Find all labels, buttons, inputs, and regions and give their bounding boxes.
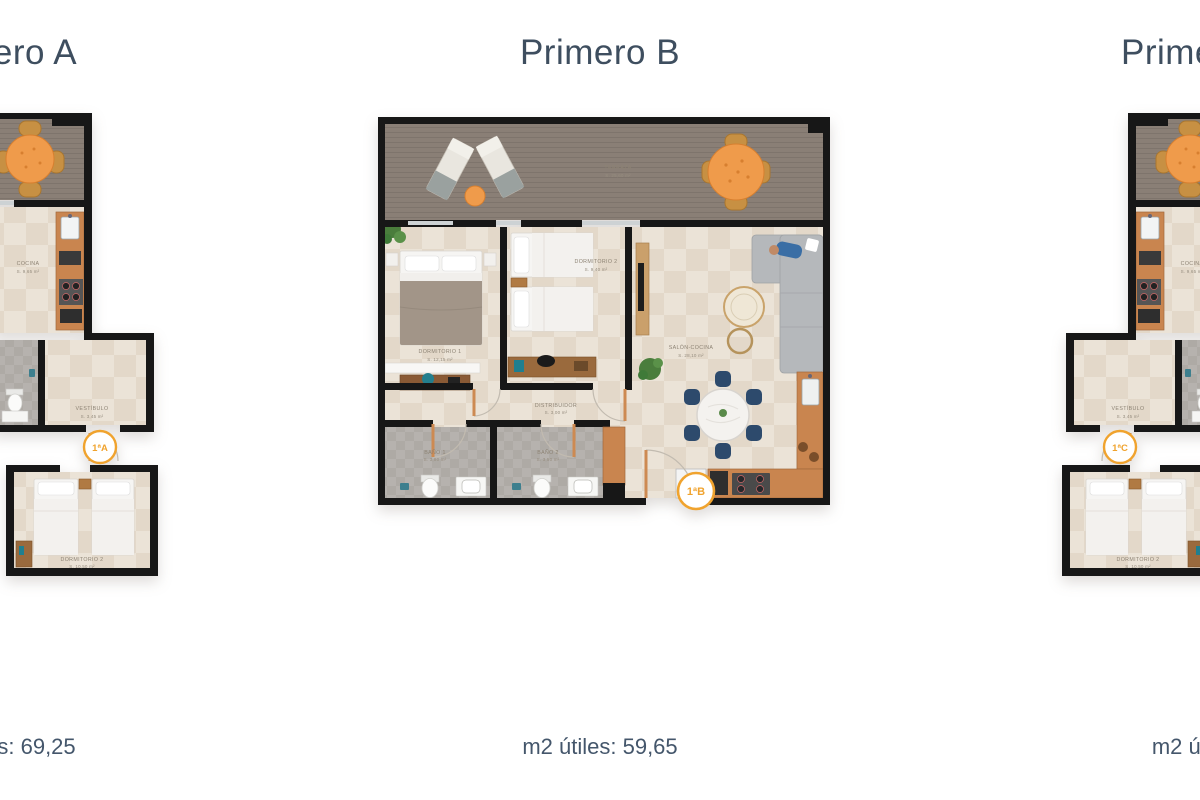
svg-text:S. 3,45 m²: S. 3,45 m² xyxy=(1117,414,1140,419)
floorplan-carousel: Primero A xyxy=(0,0,1200,800)
svg-text:S. 25,60 m²: S. 25,60 m² xyxy=(605,173,631,178)
svg-text:S. 12,15 m²: S. 12,15 m² xyxy=(427,357,453,362)
bathroom-vanity xyxy=(2,411,28,422)
svg-text:S. 10,50 m²: S. 10,50 m² xyxy=(1125,564,1151,569)
nightstand xyxy=(511,278,527,287)
bathroom-vanity xyxy=(456,477,486,496)
kitchen-sink xyxy=(61,217,79,239)
single-bed xyxy=(34,479,78,555)
svg-text:S. 28,10 m²: S. 28,10 m² xyxy=(678,353,704,358)
carousel-slide-primero-c[interactable]: Primero C COCINA S. 9,65 m² VESTÍBULO S.… xyxy=(901,0,1200,800)
svg-text:VESTÍBULO: VESTÍBULO xyxy=(76,405,109,412)
nightstand xyxy=(386,253,398,266)
svg-text:COCINA: COCINA xyxy=(1181,261,1200,267)
plan-title-a: Primero A xyxy=(0,33,299,73)
toilet xyxy=(533,475,551,498)
desk xyxy=(508,355,596,377)
svg-text:S. 3,45 m²: S. 3,45 m² xyxy=(81,414,104,419)
svg-text:COCINA: COCINA xyxy=(17,261,40,267)
measurement-line: m2 útiles: 59,65 xyxy=(299,726,901,767)
nightstand xyxy=(484,253,496,266)
svg-text:DISTRIBUIDOR: DISTRIBUIDOR xyxy=(535,403,577,409)
svg-text:S. 10,50 m²: S. 10,50 m² xyxy=(69,564,95,569)
svg-text:DORMITORIO 2: DORMITORIO 2 xyxy=(1117,557,1160,563)
nightstand xyxy=(79,479,91,489)
measurement-line: m2 útiles: 69,25 xyxy=(0,726,299,767)
svg-text:S. 9,40 m²: S. 9,40 m² xyxy=(585,267,608,272)
svg-text:DORMITORIO 1: DORMITORIO 1 xyxy=(419,349,462,355)
svg-text:1ªC: 1ªC xyxy=(1112,443,1128,454)
measurements-b: m2 útiles: 59,65 m2 construidos: 73,57 m… xyxy=(299,644,901,800)
svg-text:S. 9,65 m²: S. 9,65 m² xyxy=(1181,269,1200,274)
kitchen-stove xyxy=(59,279,83,305)
svg-text:1ªB: 1ªB xyxy=(687,486,705,498)
svg-text:BAÑO 2: BAÑO 2 xyxy=(537,449,559,456)
svg-text:BAÑO 1: BAÑO 1 xyxy=(424,449,446,456)
floorplan-image-primero-c[interactable]: COCINA S. 9,65 m² VESTÍBULO S. 3,45 m² D… xyxy=(1060,113,1200,583)
svg-text:DORMITORIO 2: DORMITORIO 2 xyxy=(61,557,104,563)
bedroom-shelf xyxy=(16,541,32,567)
svg-text:DORMITORIO 2: DORMITORIO 2 xyxy=(575,259,618,265)
svg-text:S. 9,65 m²: S. 9,65 m² xyxy=(17,269,40,274)
bathroom-vanity xyxy=(568,477,598,496)
single-bed xyxy=(92,479,134,555)
single-bed xyxy=(511,233,593,277)
svg-text:1ªA: 1ªA xyxy=(92,443,108,454)
svg-text:S. 3,80 m²: S. 3,80 m² xyxy=(424,457,447,462)
measurement-line: m2 útiles: xyxy=(901,726,1200,767)
entry-wood-wall xyxy=(603,427,625,485)
svg-text:VESTÍBULO: VESTÍBULO xyxy=(1112,405,1145,412)
wardrobe xyxy=(385,363,480,373)
svg-text:TERRAZA: TERRAZA xyxy=(604,165,631,171)
svg-text:SALÓN-COCINA: SALÓN-COCINA xyxy=(669,344,714,351)
side-table xyxy=(465,186,485,206)
unit-badge-1b: 1ªB xyxy=(678,473,714,509)
kitchen-appliance xyxy=(59,251,81,265)
plan-title-b: Primero B xyxy=(299,33,901,73)
measurements-a: m2 útiles: 69,25 m2 construidos: 88,75 m… xyxy=(0,644,299,800)
kitchen-sink xyxy=(802,379,819,405)
floorplan-image-primero-b[interactable]: TERRAZA S. 25,60 m² DORMITORIO 1 S. 12,1… xyxy=(378,117,830,512)
svg-text:S. 3,50 m²: S. 3,50 m² xyxy=(537,457,560,462)
plan-title-c: Primero C xyxy=(901,33,1200,73)
unit-badge-1c: 1ªC xyxy=(1104,431,1136,463)
double-bed xyxy=(400,251,482,345)
sideboard-tv xyxy=(636,243,649,335)
unit-badge-1a: 1ªA xyxy=(84,431,116,463)
floorplan-image-primero-a[interactable]: COCINA S. 9,65 m² VESTÍBULO S. 3,45 m² D… xyxy=(0,113,160,583)
toilet xyxy=(421,475,439,498)
single-bed xyxy=(511,287,593,331)
carousel-slide-primero-b[interactable]: Primero B xyxy=(299,0,901,800)
svg-text:S. 3,00 m²: S. 3,00 m² xyxy=(545,410,568,415)
kitchen-counter xyxy=(56,212,84,330)
kitchen-stove xyxy=(732,473,770,495)
carousel-slide-primero-a[interactable]: Primero A xyxy=(0,0,299,800)
measurements-c: m2 útiles: m2 construidos: m2 terraza: m… xyxy=(901,644,1200,800)
floorplan-a-graphics xyxy=(0,113,158,576)
